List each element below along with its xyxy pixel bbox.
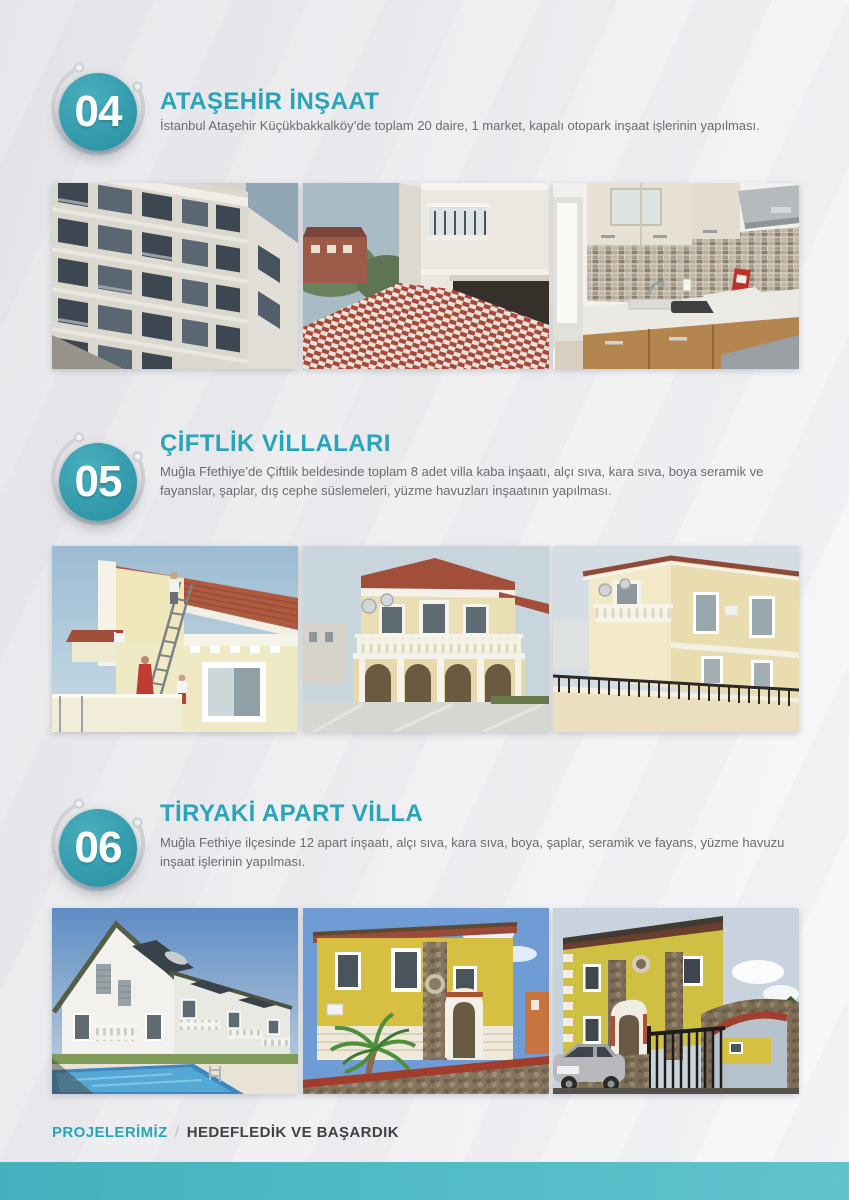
villa-corner-illustration — [553, 546, 799, 732]
project-number: 04 — [59, 73, 137, 151]
kitchen-interior-illustration — [553, 183, 799, 369]
project-description: Muğla Ffethiye’de Çiftlik beldesinde top… — [160, 463, 820, 501]
apartments-pool-photo — [52, 908, 298, 1094]
villa-painting-photo — [52, 546, 298, 732]
bottom-accent-bar — [0, 1162, 849, 1200]
project-title: ÇİFTLİK VİLLALARI — [160, 430, 391, 458]
apartments-pool-illustration — [52, 908, 298, 1094]
footer-line: PROJELERİMİZ/HEDEFLEDİK VE BAŞARDIK — [52, 1122, 399, 1142]
villa-front-photo — [303, 546, 549, 732]
kitchen-interior-photo — [553, 183, 799, 369]
yellow-duplex-illustration — [553, 908, 799, 1094]
footer-brand: PROJELERİMİZ — [52, 1124, 168, 1141]
apartment-facade-illustration — [52, 183, 298, 369]
villa-painting-illustration — [52, 546, 298, 732]
project-title: TİRYAKİ APART VİLLA — [160, 800, 423, 828]
project-number: 06 — [59, 809, 137, 887]
building-entrance-illustration — [303, 183, 549, 369]
project-description: İstanbul Ataşehir Küçükbakkalköy’de topl… — [160, 117, 820, 136]
yellow-villa-photo — [303, 908, 549, 1094]
yellow-duplex-photo — [553, 908, 799, 1094]
building-entrance-photo — [303, 183, 549, 369]
footer-separator: / — [168, 1122, 187, 1141]
villa-corner-photo — [553, 546, 799, 732]
apartment-facade-photo — [52, 183, 298, 369]
footer-tagline: HEDEFLEDİK VE BAŞARDIK — [187, 1124, 399, 1141]
villa-front-illustration — [303, 546, 549, 732]
project-number-badge-05: 05 — [50, 430, 146, 526]
project-number-badge-06: 06 — [50, 796, 146, 892]
project-number-badge-04: 04 — [50, 60, 146, 156]
brochure-page: 04 ATAŞEHİR İNŞAAT İstanbul Ataşehir Küç… — [0, 0, 849, 1200]
project-title: ATAŞEHİR İNŞAAT — [160, 88, 379, 116]
project-number: 05 — [59, 443, 137, 521]
project-description: Muğla Fethiye ilçesinde 12 apart inşaatı… — [160, 834, 820, 872]
yellow-villa-illustration — [303, 908, 549, 1094]
